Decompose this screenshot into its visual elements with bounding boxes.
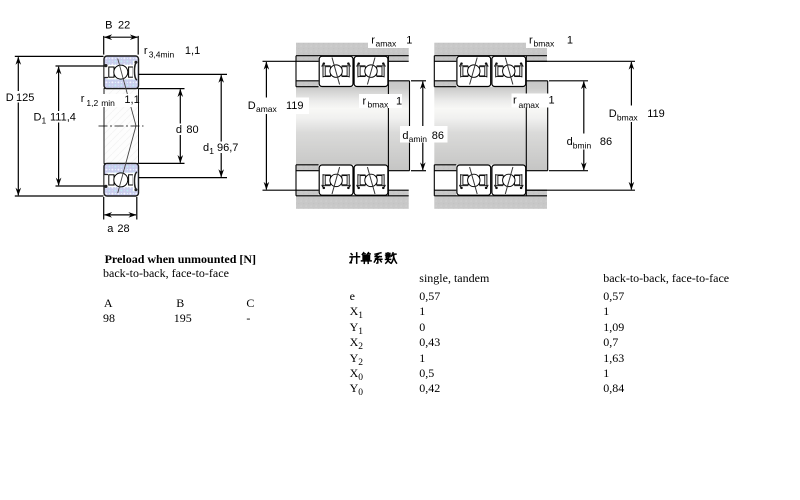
svg-text:r3,4min1,1: r3,4min1,1: [144, 45, 200, 60]
svg-text:D125: D125: [6, 92, 35, 104]
svg-text:B22: B22: [105, 20, 130, 32]
svg-text:d196,7: d196,7: [203, 142, 238, 156]
svg-text:D1111,4: D1111,4: [34, 111, 76, 125]
svg-text:a28: a28: [107, 223, 129, 235]
svg-text:d80: d80: [176, 124, 199, 136]
